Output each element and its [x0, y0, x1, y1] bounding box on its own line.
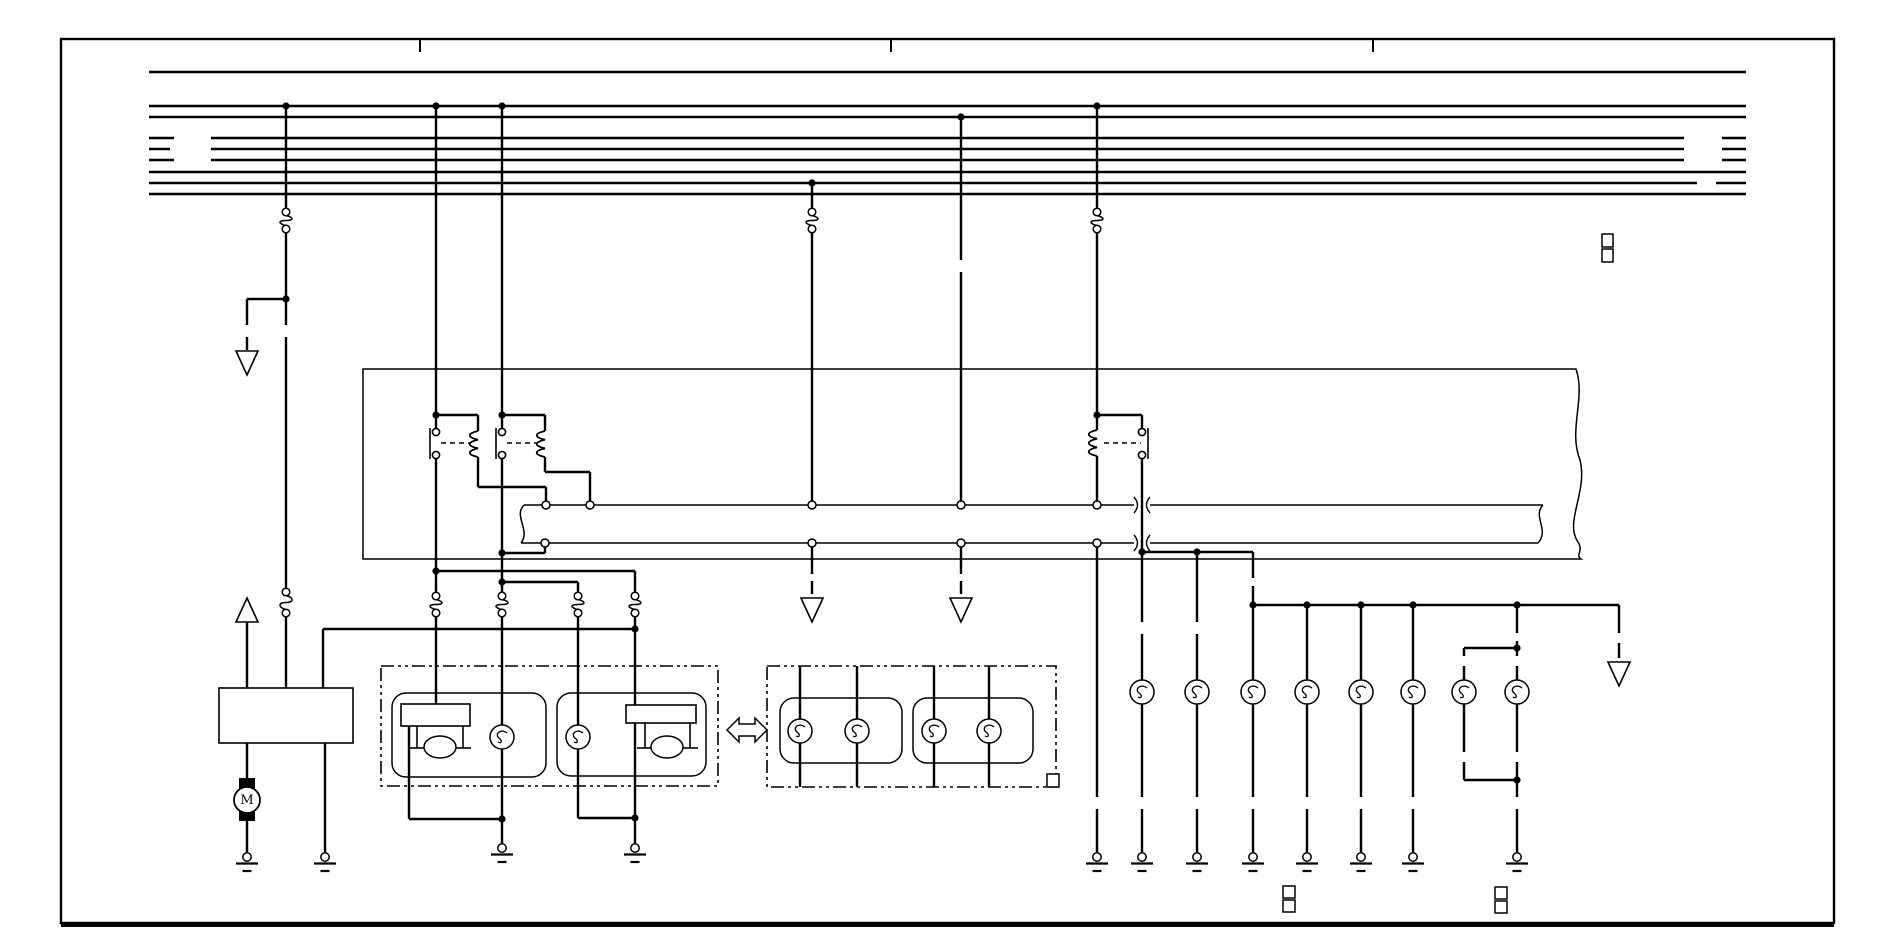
relay-coil-icon [1089, 430, 1097, 456]
relay-contact-terminal [1138, 428, 1145, 435]
bulb-icon [1452, 680, 1476, 704]
fuse-terminal [282, 208, 290, 216]
connector-pin [542, 501, 550, 509]
ground-icon [1138, 853, 1146, 861]
bulb-icon [1241, 680, 1265, 704]
connector-pin [808, 501, 816, 509]
bulb-icon [566, 725, 590, 749]
motor-label: M [240, 793, 253, 808]
bulb-icon [845, 719, 869, 743]
bulb-icon [788, 719, 812, 743]
ground-icon [1513, 853, 1521, 861]
junction-dot [1249, 601, 1256, 608]
ref-square [1047, 774, 1059, 787]
ref-square [1602, 249, 1613, 262]
bulb-icon [1349, 680, 1373, 704]
connector-pin [586, 501, 594, 509]
component-box [401, 704, 470, 726]
fuse-icon [280, 596, 292, 610]
fuse-icon [806, 216, 818, 226]
fuse-terminal [808, 225, 816, 233]
junction-dot [432, 411, 439, 418]
ground-icon [1409, 853, 1417, 861]
junction-dot [1138, 548, 1145, 555]
offpage-arrow-down-icon [950, 598, 972, 622]
junction-dot [1303, 601, 1310, 608]
junction-dot [498, 102, 505, 109]
wire-crossover-icon [1147, 535, 1151, 551]
component-box [626, 705, 696, 723]
fuse-terminal [498, 592, 506, 600]
fuse-terminal [1093, 208, 1101, 216]
junction-dot [1193, 548, 1200, 555]
headlight-bulb-icon [651, 736, 683, 758]
ground-icon [1093, 853, 1101, 861]
fuse-icon [496, 600, 508, 610]
ground-icon [243, 853, 251, 861]
bulb-icon [1185, 680, 1209, 704]
junction-dot [432, 567, 439, 574]
ref-square [1495, 901, 1507, 913]
junction-dot [432, 102, 439, 109]
ground-icon [631, 844, 639, 852]
diagram-page: M [0, 0, 1900, 950]
bulb-icon [977, 719, 1001, 743]
fuse-terminal [631, 609, 639, 617]
ground-icon [321, 853, 329, 861]
junction-dot [1513, 601, 1520, 608]
ground-icon [1357, 853, 1365, 861]
connector-strip-torn-edge [1538, 505, 1543, 543]
connector-pin [541, 539, 549, 547]
junction-dot [1513, 776, 1520, 783]
fuse-terminal [282, 609, 290, 617]
junction-dot [1409, 601, 1416, 608]
fuse-terminal [574, 592, 582, 600]
connector-pin [957, 501, 965, 509]
junction-dot [1513, 644, 1520, 651]
fuse-terminal [432, 592, 440, 600]
relay-contact-terminal [432, 451, 439, 458]
component-box [219, 688, 353, 743]
offpage-arrow-down-icon [801, 598, 823, 622]
junction-dot [631, 814, 638, 821]
fuse-icon [629, 600, 641, 610]
fuse-terminal [574, 609, 582, 617]
junction-dot [1093, 411, 1100, 418]
connector-pin [1093, 539, 1101, 547]
fuse-icon [280, 216, 292, 226]
ref-square [1283, 886, 1295, 898]
junction-dot [282, 295, 289, 302]
junction-dot [498, 578, 505, 585]
ground-icon [1303, 853, 1311, 861]
relay-coil-icon [470, 431, 478, 457]
relay-coil-icon [537, 431, 545, 457]
headlight-bulb-icon [424, 736, 456, 758]
bulb-icon [1295, 680, 1319, 704]
junction-dot [498, 549, 505, 556]
fuse-terminal [631, 592, 639, 600]
ground-icon [1249, 853, 1257, 861]
junction-dot [498, 815, 505, 822]
junction-dot [957, 113, 964, 120]
fuse-terminal [432, 609, 440, 617]
fuse-terminal [282, 225, 290, 233]
junction-dot [282, 102, 289, 109]
relay-contact-terminal [1138, 451, 1145, 458]
offpage-arrow-up-icon [236, 598, 258, 622]
offpage-arrow-down-icon [236, 351, 258, 375]
fuse-icon [1091, 216, 1103, 226]
fuse-terminal [808, 208, 816, 216]
bulb-icon [490, 725, 514, 749]
junction-dot [1093, 102, 1100, 109]
junction-dot [1357, 601, 1364, 608]
connector-pin [957, 539, 965, 547]
ref-square [1283, 900, 1295, 912]
bulb-icon [1130, 680, 1154, 704]
junction-dot [631, 625, 638, 632]
wiring-diagram: M [0, 0, 1900, 950]
bulb-icon [922, 719, 946, 743]
fuse-icon [430, 600, 442, 610]
bulb-icon [1505, 680, 1529, 704]
relay-contact-terminal [498, 451, 505, 458]
bulb-icon [1401, 680, 1425, 704]
connector-pin [808, 539, 816, 547]
ref-square [1602, 234, 1613, 247]
junction-dot [808, 179, 815, 186]
connector-strip-torn-edge [520, 505, 524, 543]
wire-crossover-icon [1134, 497, 1138, 513]
wire-crossover-icon [1147, 497, 1151, 513]
variant-swap-arrow-icon [727, 718, 767, 742]
ground-icon [1193, 853, 1201, 861]
ref-square [1495, 887, 1507, 899]
ground-icon [498, 844, 506, 852]
fuse-terminal [1093, 225, 1101, 233]
fuse-terminal [498, 609, 506, 617]
wire-crossover-icon [1134, 535, 1138, 551]
relay-contact-terminal [432, 428, 439, 435]
connector-pin [1093, 501, 1101, 509]
fuse-icon [572, 600, 584, 610]
offpage-arrow-down-icon [1608, 662, 1630, 686]
junction-dot [498, 411, 505, 418]
relay-contact-terminal [498, 428, 505, 435]
fuse-terminal [282, 588, 290, 596]
